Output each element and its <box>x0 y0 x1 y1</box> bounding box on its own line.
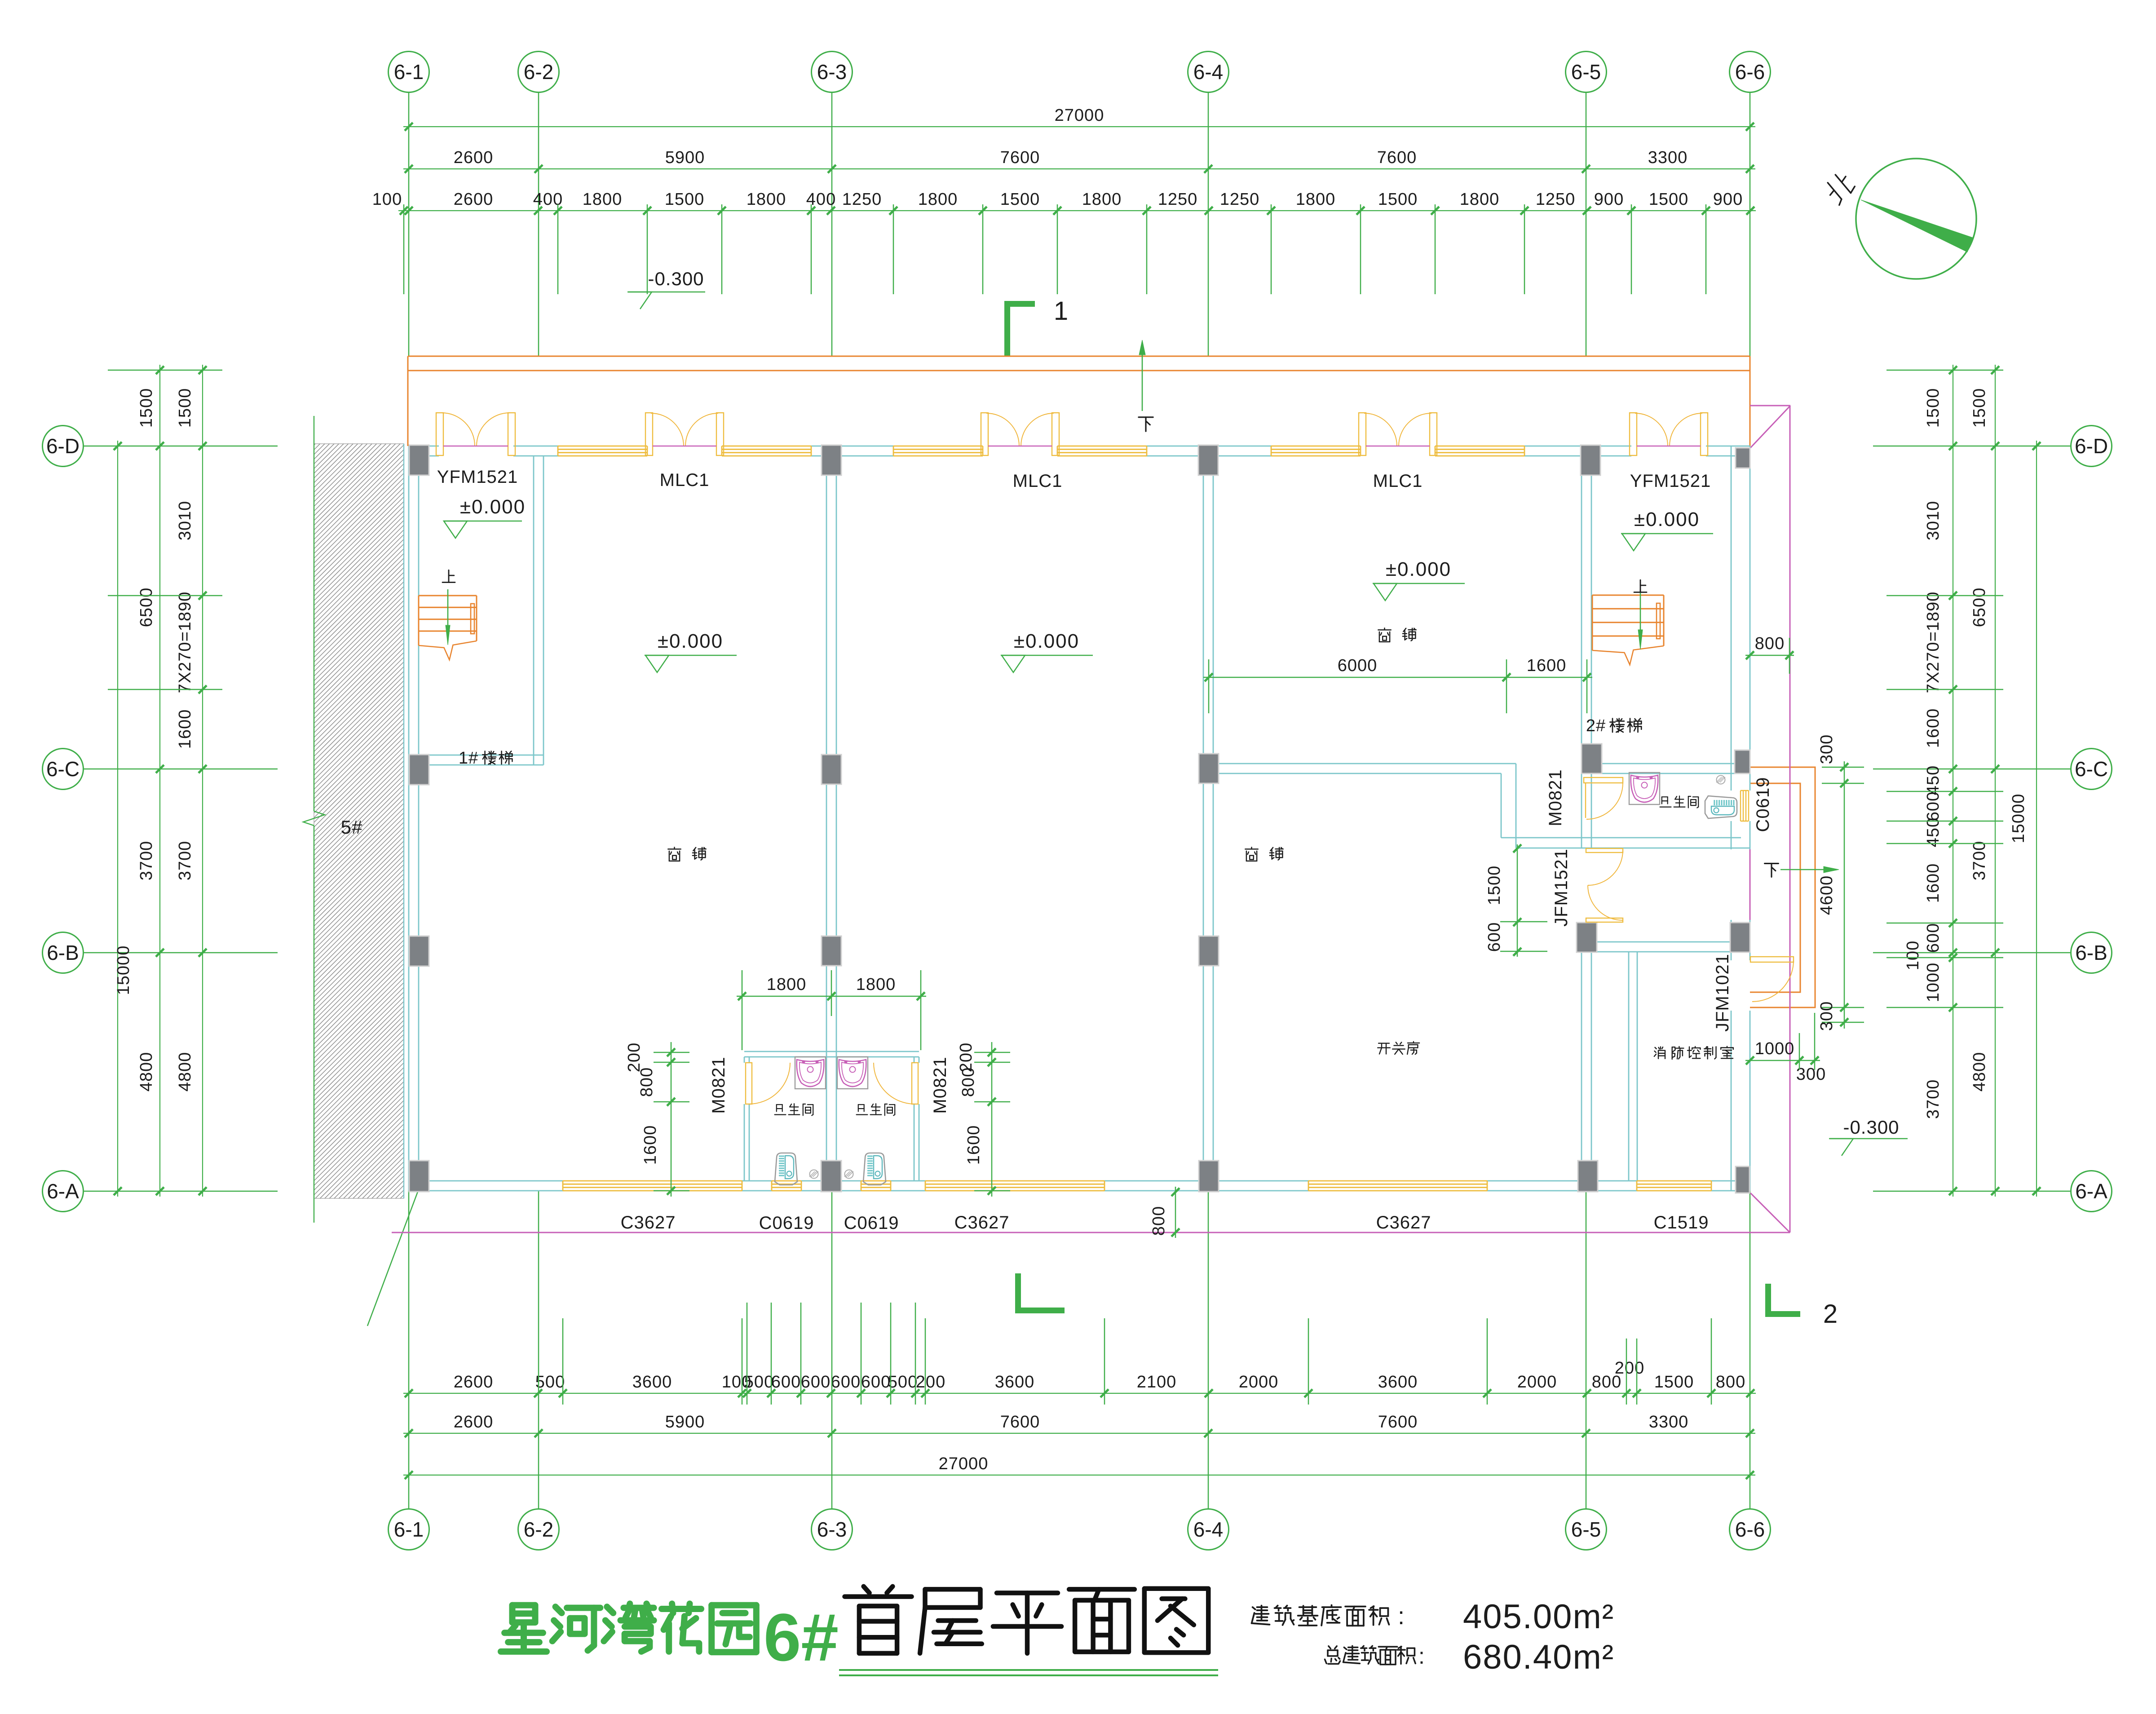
svg-text:1500: 1500 <box>1649 190 1689 209</box>
svg-text:1600: 1600 <box>1924 708 1943 748</box>
svg-text:1: 1 <box>1054 296 1068 326</box>
svg-text:6#: 6# <box>764 1599 839 1675</box>
svg-text:±0.000: ±0.000 <box>1634 508 1700 530</box>
svg-text:600: 600 <box>1924 923 1943 953</box>
svg-text:1500: 1500 <box>1924 388 1943 428</box>
svg-text:6-A: 6-A <box>47 1179 79 1203</box>
svg-text:600: 600 <box>801 1373 831 1392</box>
svg-text:4800: 4800 <box>176 1052 194 1092</box>
svg-text:6-D: 6-D <box>2075 434 2108 458</box>
svg-text:6-3: 6-3 <box>817 1518 847 1541</box>
svg-text:2#: 2# <box>1586 716 1606 735</box>
svg-text:YFM1521: YFM1521 <box>437 467 518 487</box>
svg-text:6-B: 6-B <box>2075 941 2107 964</box>
svg-text:7600: 7600 <box>1000 1413 1040 1431</box>
svg-text:3300: 3300 <box>1649 1413 1689 1431</box>
svg-text:-0.300: -0.300 <box>1843 1117 1899 1138</box>
svg-text:6500: 6500 <box>137 588 156 627</box>
svg-text:C0619: C0619 <box>844 1213 899 1233</box>
svg-text:1500: 1500 <box>1970 388 1989 428</box>
svg-text:3700: 3700 <box>1970 841 1989 881</box>
svg-text:100: 100 <box>372 190 402 209</box>
svg-text:4800: 4800 <box>137 1052 156 1092</box>
svg-text:3010: 3010 <box>176 501 194 541</box>
svg-text:1500: 1500 <box>1378 190 1418 209</box>
svg-text:1600: 1600 <box>176 709 194 749</box>
svg-text:7600: 7600 <box>1000 148 1040 167</box>
svg-text:4600: 4600 <box>1817 875 1836 915</box>
svg-text:200: 200 <box>916 1373 945 1392</box>
svg-text:-0.300: -0.300 <box>648 268 704 289</box>
svg-text:600: 600 <box>831 1373 861 1392</box>
svg-text:5900: 5900 <box>665 1413 705 1431</box>
svg-text:680.40m²: 680.40m² <box>1463 1638 1614 1676</box>
svg-text:2600: 2600 <box>454 1373 494 1392</box>
svg-text:600: 600 <box>771 1373 801 1392</box>
svg-text:1500: 1500 <box>176 388 194 428</box>
svg-text:1000: 1000 <box>1755 1039 1795 1058</box>
svg-text:6-5: 6-5 <box>1571 60 1601 84</box>
svg-text:M0821: M0821 <box>709 1056 729 1113</box>
svg-text:1500: 1500 <box>1654 1373 1694 1392</box>
svg-text:6-C: 6-C <box>2075 757 2108 781</box>
svg-text:27000: 27000 <box>1055 106 1105 125</box>
svg-text:800: 800 <box>1716 1373 1745 1392</box>
svg-text:7X270=1890: 7X270=1890 <box>176 592 194 694</box>
svg-text:6-B: 6-B <box>47 941 79 964</box>
svg-text::: : <box>1398 1603 1405 1630</box>
svg-text:600: 600 <box>1924 791 1943 821</box>
svg-text:15000: 15000 <box>2009 794 2028 844</box>
svg-text:3600: 3600 <box>995 1373 1035 1392</box>
svg-text:3600: 3600 <box>1378 1373 1418 1392</box>
svg-text:300: 300 <box>1817 734 1836 764</box>
svg-text:YFM1521: YFM1521 <box>1630 471 1711 491</box>
svg-text:2000: 2000 <box>1517 1373 1557 1392</box>
svg-text:7X270=1890: 7X270=1890 <box>1924 592 1943 694</box>
svg-text:1600: 1600 <box>1924 863 1943 903</box>
svg-text:6-1: 6-1 <box>394 60 424 84</box>
svg-text:1500: 1500 <box>665 190 705 209</box>
svg-text:JFM1521: JFM1521 <box>1551 848 1571 927</box>
svg-text:1600: 1600 <box>964 1125 983 1165</box>
svg-text:900: 900 <box>1713 190 1743 209</box>
svg-text:±0.000: ±0.000 <box>1386 558 1451 580</box>
svg-text:6-5: 6-5 <box>1571 1518 1601 1541</box>
svg-text:1800: 1800 <box>1082 190 1122 209</box>
svg-text:500: 500 <box>535 1373 565 1392</box>
svg-text:800: 800 <box>1149 1206 1168 1236</box>
svg-text:1600: 1600 <box>1527 656 1567 675</box>
svg-text:6-1: 6-1 <box>394 1518 424 1541</box>
svg-text:450: 450 <box>1924 765 1943 795</box>
svg-text:6-D: 6-D <box>46 434 80 458</box>
svg-text:6-4: 6-4 <box>1193 1518 1223 1541</box>
svg-text:6-2: 6-2 <box>524 60 553 84</box>
svg-text:1800: 1800 <box>856 975 896 994</box>
svg-text:2000: 2000 <box>1239 1373 1279 1392</box>
svg-text:1600: 1600 <box>641 1125 660 1165</box>
svg-text:6500: 6500 <box>1970 588 1989 627</box>
svg-text:C3627: C3627 <box>1376 1213 1431 1232</box>
svg-text:3700: 3700 <box>176 841 194 881</box>
svg-text:800: 800 <box>1755 634 1785 653</box>
svg-text:2600: 2600 <box>454 1413 494 1431</box>
svg-text:6-A: 6-A <box>2075 1179 2107 1203</box>
svg-text:1250: 1250 <box>1536 190 1576 209</box>
svg-text:1500: 1500 <box>1485 866 1504 906</box>
svg-text:6-C: 6-C <box>46 757 80 781</box>
svg-text:2: 2 <box>1823 1299 1838 1329</box>
svg-text:M0821: M0821 <box>930 1056 950 1113</box>
svg-text:7600: 7600 <box>1378 1413 1418 1431</box>
svg-text:±0.000: ±0.000 <box>1014 630 1079 652</box>
svg-text:800: 800 <box>959 1067 978 1097</box>
svg-text:27000: 27000 <box>939 1454 989 1473</box>
svg-text:C3627: C3627 <box>954 1213 1010 1232</box>
svg-text:100: 100 <box>1904 941 1922 970</box>
svg-text:3700: 3700 <box>137 841 156 881</box>
svg-text:405.00m²: 405.00m² <box>1463 1598 1614 1636</box>
svg-text:450: 450 <box>1924 817 1943 847</box>
svg-text:500: 500 <box>744 1373 774 1392</box>
svg-text:2100: 2100 <box>1137 1373 1177 1392</box>
svg-text:3600: 3600 <box>632 1373 672 1392</box>
svg-text:1250: 1250 <box>1158 190 1198 209</box>
svg-text:300: 300 <box>1817 1001 1836 1031</box>
svg-text:7600: 7600 <box>1377 148 1417 167</box>
svg-text:600: 600 <box>1485 922 1504 952</box>
svg-text:1500: 1500 <box>137 388 156 428</box>
svg-text:600: 600 <box>861 1373 891 1392</box>
svg-text:MLC1: MLC1 <box>1013 471 1063 491</box>
svg-text:MLC1: MLC1 <box>660 470 710 490</box>
svg-text:6-4: 6-4 <box>1193 60 1223 84</box>
svg-text:M0821: M0821 <box>1546 769 1565 826</box>
svg-text::: : <box>1418 1643 1425 1669</box>
svg-text:C0619: C0619 <box>759 1213 814 1233</box>
svg-text:1500: 1500 <box>1000 190 1040 209</box>
svg-text:1250: 1250 <box>1220 190 1260 209</box>
svg-text:1800: 1800 <box>918 190 958 209</box>
svg-text:6-3: 6-3 <box>817 60 847 84</box>
svg-text:800: 800 <box>637 1067 656 1097</box>
svg-text:6000: 6000 <box>1338 656 1378 675</box>
svg-text:2600: 2600 <box>454 148 494 167</box>
svg-text:6-6: 6-6 <box>1735 60 1765 84</box>
svg-text:1800: 1800 <box>1296 190 1336 209</box>
svg-text:200: 200 <box>1615 1359 1644 1378</box>
svg-text:MLC1: MLC1 <box>1373 471 1423 491</box>
svg-text:1800: 1800 <box>1460 190 1500 209</box>
svg-text:1800: 1800 <box>583 190 623 209</box>
svg-text:1#: 1# <box>459 749 478 768</box>
svg-text:1800: 1800 <box>747 190 786 209</box>
svg-text:5900: 5900 <box>665 148 705 167</box>
svg-text:3010: 3010 <box>1924 501 1943 541</box>
svg-text:C3627: C3627 <box>621 1213 676 1232</box>
svg-text:4800: 4800 <box>1970 1052 1989 1092</box>
svg-text:JFM1021: JFM1021 <box>1713 954 1732 1032</box>
svg-text:6-6: 6-6 <box>1735 1518 1765 1541</box>
svg-text:2600: 2600 <box>454 190 494 209</box>
svg-text:3700: 3700 <box>1924 1079 1943 1119</box>
svg-text:±0.000: ±0.000 <box>658 630 723 652</box>
svg-text:1800: 1800 <box>767 975 807 994</box>
svg-text:300: 300 <box>1796 1065 1826 1084</box>
svg-text:5#: 5# <box>341 817 363 838</box>
svg-text:900: 900 <box>1594 190 1624 209</box>
svg-text:3300: 3300 <box>1648 148 1688 167</box>
svg-text:500: 500 <box>888 1373 918 1392</box>
svg-text:±0.000: ±0.000 <box>460 496 526 518</box>
svg-text:C0619: C0619 <box>1753 777 1773 832</box>
svg-text:1250: 1250 <box>842 190 882 209</box>
svg-text:C1519: C1519 <box>1654 1213 1709 1232</box>
svg-text:1000: 1000 <box>1924 963 1943 1003</box>
svg-text:15000: 15000 <box>114 945 133 995</box>
svg-text:6-2: 6-2 <box>524 1518 553 1541</box>
